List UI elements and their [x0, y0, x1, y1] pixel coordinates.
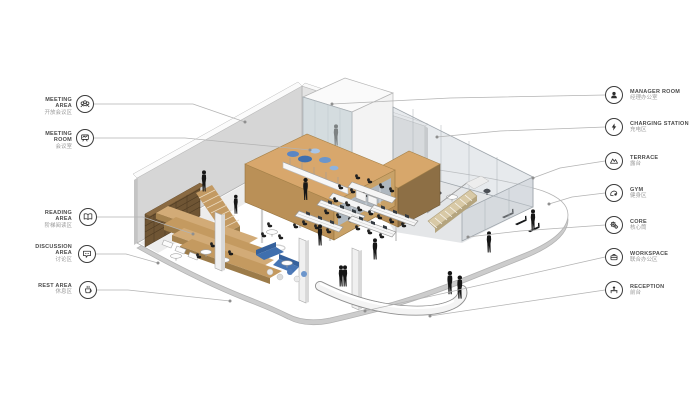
leader-discussion-area — [93, 254, 160, 265]
leader-terrace — [532, 161, 606, 180]
briefcase-icon — [606, 249, 623, 266]
mountains-icon — [606, 153, 623, 170]
floorplan-illustration — [0, 0, 700, 401]
leader-meeting-area — [93, 104, 247, 124]
reception-desk-icon — [606, 282, 623, 299]
speech-bubble-icon — [79, 246, 96, 263]
presentation-screen-icon — [77, 130, 94, 147]
person-bust-icon — [606, 87, 623, 104]
gears-icon — [606, 217, 623, 234]
flex-arm-icon — [606, 185, 623, 202]
diagram-canvas: MEETING AREA 开放会议区 MEETING ROOM 会议室 READ… — [0, 0, 700, 401]
coffee-cup-icon — [80, 282, 97, 299]
lightning-bolt-icon — [606, 119, 623, 136]
people-group-icon — [77, 96, 94, 113]
leader-charging-station — [436, 127, 606, 139]
leader-rest-area — [94, 290, 232, 303]
open-book-icon — [80, 209, 97, 226]
